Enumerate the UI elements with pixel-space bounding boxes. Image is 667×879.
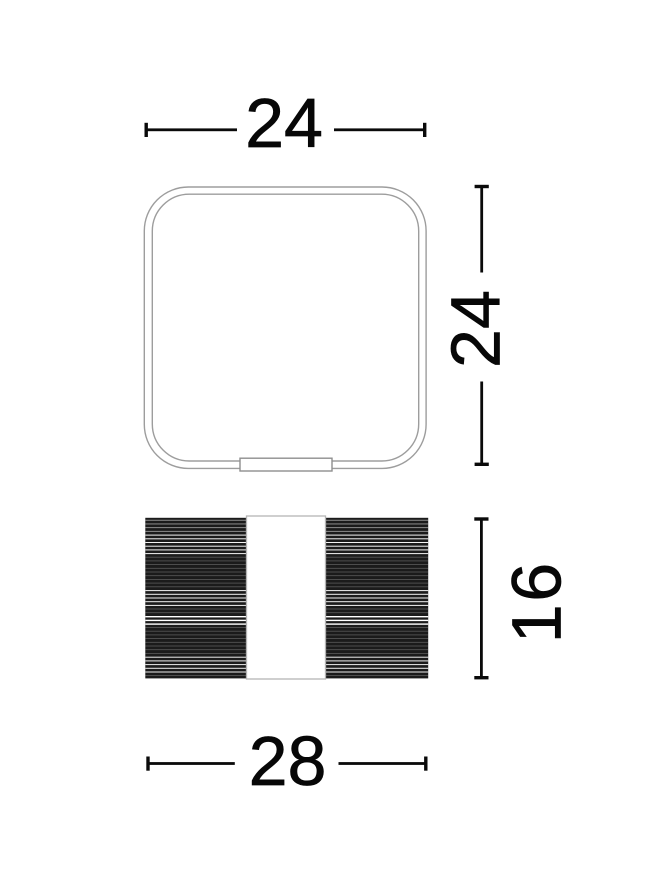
svg-text:28: 28 — [249, 722, 327, 800]
svg-text:24: 24 — [437, 290, 515, 368]
svg-text:24: 24 — [245, 84, 323, 162]
svg-text:16: 16 — [498, 560, 576, 643]
